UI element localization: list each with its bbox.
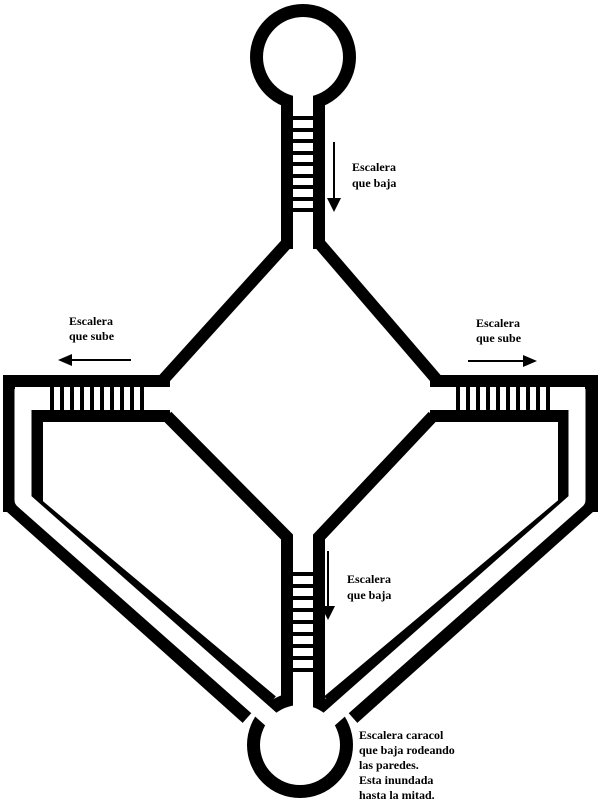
label-line: Escalera	[476, 316, 521, 331]
right-arrow-icon	[468, 355, 537, 367]
bottom-room-floor	[260, 705, 340, 785]
label-line: Escalera caracol	[359, 728, 455, 743]
diamond-upper-left-wall	[163, 243, 287, 380]
label-line: que baja	[347, 587, 391, 603]
label-right-stair: Escalera que sube	[476, 316, 521, 346]
label-line: que sube	[69, 329, 114, 344]
label-line: Escalera	[69, 314, 114, 329]
label-center-stair: Escalera que baja	[347, 571, 391, 603]
label-top-stair: Escalera que baja	[352, 159, 396, 191]
diamond-upper-right-wall	[319, 243, 437, 380]
left-wrap-outer-wall	[9, 505, 247, 718]
dungeon-map-drawing	[0, 0, 600, 812]
label-line: Escalera	[347, 571, 391, 587]
label-line: que baja rodeando	[359, 743, 455, 758]
left-arrow-icon	[58, 354, 131, 366]
label-line: hasta la mitad.	[359, 788, 455, 803]
right-stair-floor	[423, 387, 585, 410]
dungeon-map: Escalera que baja Escalera que sube Esca…	[0, 0, 600, 812]
label-line: que baja	[352, 175, 396, 191]
label-left-stair: Escalera que sube	[69, 314, 114, 344]
label-line: que sube	[476, 331, 521, 346]
label-line: Escalera	[352, 159, 396, 175]
right-wrap-outer-wall	[353, 505, 591, 718]
label-line: Esta inundada	[359, 773, 455, 788]
label-spiral-stair-note: Escalera caracol que baja rodeando las p…	[359, 728, 455, 803]
left-stair-floor	[15, 387, 177, 410]
label-line: las paredes.	[359, 758, 455, 773]
down-arrow-icon	[327, 142, 341, 212]
